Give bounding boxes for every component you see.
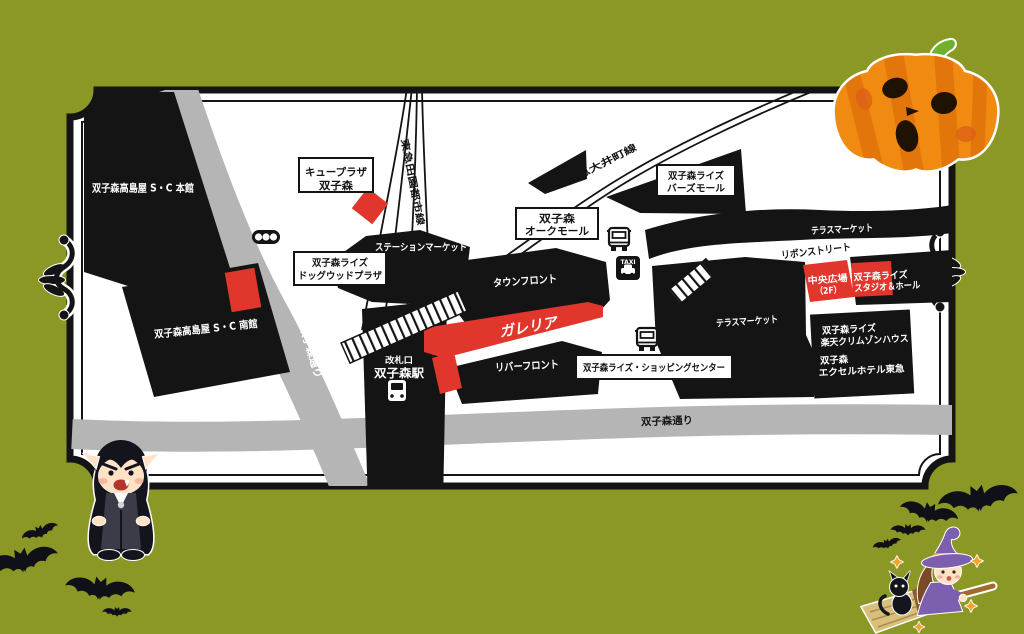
vampire-shoe-right xyxy=(122,550,144,560)
cat-head xyxy=(890,578,908,596)
label-oak-mall-2: オークモール xyxy=(525,226,590,238)
label-birds-mall-1: 双子森ライズ xyxy=(667,170,724,182)
witch-blush-left xyxy=(937,575,942,578)
cat-eye-left xyxy=(895,585,898,588)
label-dogwood-1: 双子森ライズ xyxy=(311,257,368,269)
label-hotel-1: 双子森 xyxy=(819,353,849,367)
vampire-hand-left xyxy=(93,517,106,526)
label-takashimaya-main: 双子森高島屋 S・C 本館 xyxy=(91,182,194,195)
vampire-character xyxy=(84,440,158,560)
witch-blush-right xyxy=(955,575,960,578)
vampire-shoe-left xyxy=(98,550,120,560)
vampire-blush-right xyxy=(135,478,144,484)
vampire-brooch xyxy=(118,502,124,508)
witch-hand xyxy=(960,595,967,602)
witch-mouth xyxy=(947,576,952,581)
traffic-light-icon xyxy=(252,230,280,244)
train-icon xyxy=(388,380,406,401)
cat-eye-right xyxy=(902,585,905,588)
vampire-eye-right xyxy=(128,470,133,475)
road-south xyxy=(72,419,954,436)
label-qplaza-1: キュープラザ xyxy=(305,166,367,179)
label-central-plaza-2: （2F） xyxy=(815,285,842,298)
taxi-stand-icon: TAXI xyxy=(616,256,640,280)
label-station-gate: 改札口 xyxy=(385,355,413,366)
label-station-name: 双子森駅 xyxy=(373,366,425,380)
witch-eye-left xyxy=(941,570,944,573)
vampire-eye-left xyxy=(108,470,113,475)
cat-body xyxy=(893,594,912,615)
label-station-market: ステーションマーケット xyxy=(375,243,467,254)
label-oak-mall-1: 双子森 xyxy=(538,212,576,225)
witch-eye-right xyxy=(952,570,955,573)
label-south-street: 双子森通り xyxy=(640,414,693,429)
label-dogwood-2: ドッグウッドプラザ xyxy=(298,270,382,282)
label-birds-mall-2: バーズモール xyxy=(667,183,726,195)
pumpkin-cheek-right xyxy=(956,126,976,142)
halloween-station-map: TAXI 双子森高島屋 S・C 本館 双子森高島屋 S・C 南館 キュープラザ … xyxy=(0,0,1024,634)
label-qplaza-2: 双子森 xyxy=(318,179,354,192)
vampire-hand-right xyxy=(137,517,150,526)
label-shopping-center: 双子森ライズ・ショッピングセンター xyxy=(582,362,725,374)
vampire-blush-left xyxy=(99,478,108,484)
